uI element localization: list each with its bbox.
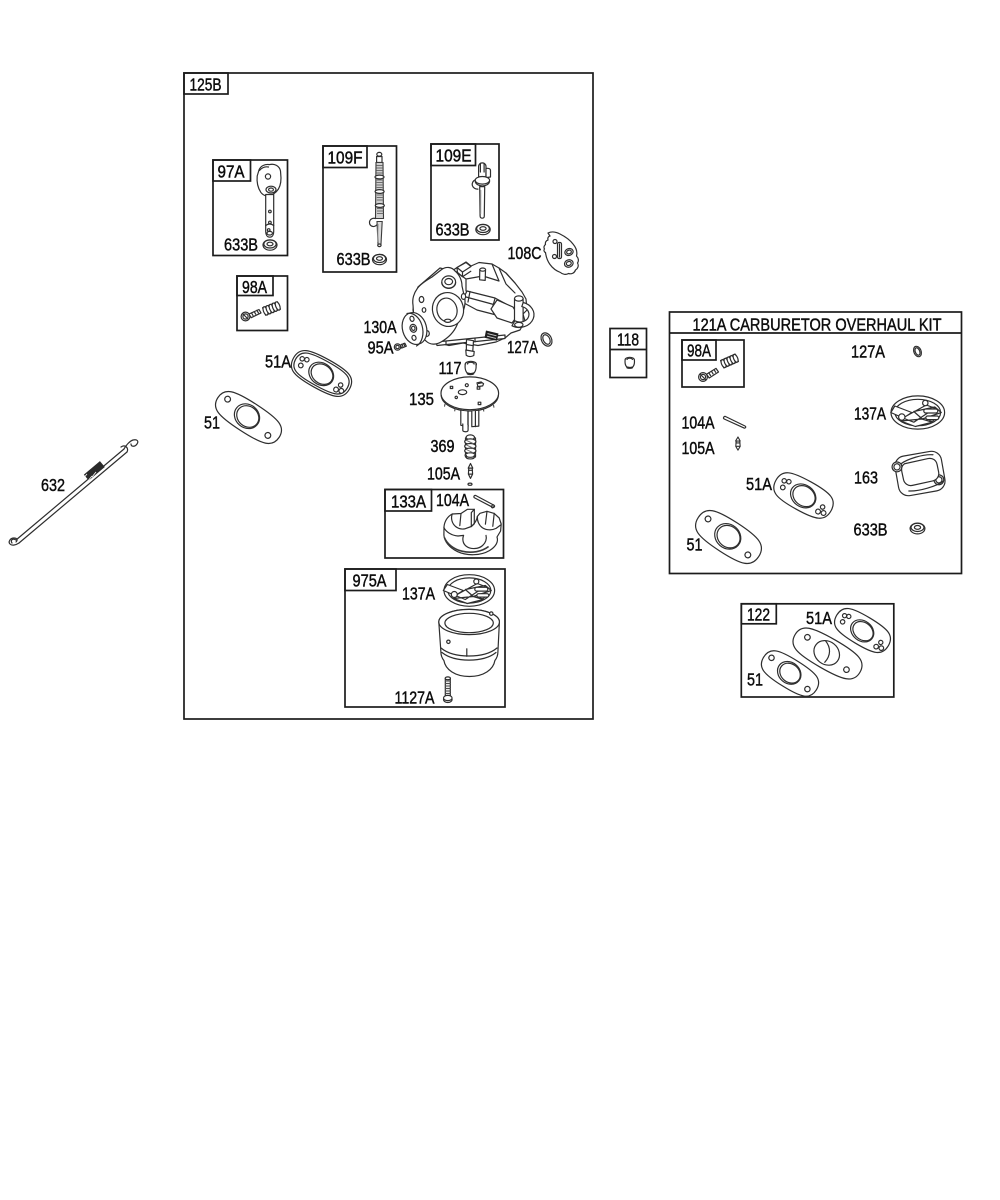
svg-text:97A: 97A (218, 162, 245, 182)
svg-text:975A: 975A (353, 571, 387, 591)
svg-text:108C: 108C (508, 243, 542, 263)
svg-text:1127A: 1127A (395, 688, 435, 708)
svg-text:109F: 109F (328, 148, 363, 168)
svg-text:135: 135 (409, 389, 434, 409)
svg-text:51: 51 (204, 413, 220, 433)
svg-text:122: 122 (747, 605, 770, 625)
svg-text:163: 163 (854, 468, 878, 488)
svg-text:121A CARBURETOR OVERHAUL KIT: 121A CARBURETOR OVERHAUL KIT (693, 315, 942, 335)
svg-text:117: 117 (439, 358, 462, 378)
svg-text:51: 51 (747, 670, 763, 690)
svg-text:127A: 127A (851, 342, 885, 362)
svg-text:633B: 633B (436, 220, 470, 240)
svg-text:98A: 98A (687, 341, 711, 361)
svg-text:104A: 104A (436, 490, 469, 510)
svg-text:133A: 133A (391, 492, 426, 512)
svg-text:633B: 633B (337, 249, 371, 269)
svg-text:105A: 105A (682, 438, 715, 458)
svg-text:127A: 127A (507, 337, 538, 357)
svg-text:633B: 633B (854, 520, 888, 540)
svg-text:51A: 51A (746, 474, 772, 494)
svg-text:125B: 125B (190, 75, 222, 95)
svg-text:130A: 130A (364, 317, 397, 337)
svg-text:104A: 104A (682, 413, 715, 433)
svg-text:137A: 137A (854, 404, 886, 424)
svg-text:51A: 51A (265, 352, 291, 372)
svg-text:118: 118 (617, 330, 639, 350)
svg-text:105A: 105A (427, 464, 460, 484)
svg-text:109E: 109E (436, 146, 472, 166)
svg-text:98A: 98A (242, 277, 267, 297)
svg-text:95A: 95A (368, 338, 394, 358)
svg-text:51A: 51A (806, 608, 832, 628)
svg-text:369: 369 (431, 436, 455, 456)
svg-text:632: 632 (41, 475, 65, 495)
svg-text:633B: 633B (224, 235, 258, 255)
svg-text:137A: 137A (402, 584, 435, 604)
svg-text:51: 51 (687, 535, 703, 555)
